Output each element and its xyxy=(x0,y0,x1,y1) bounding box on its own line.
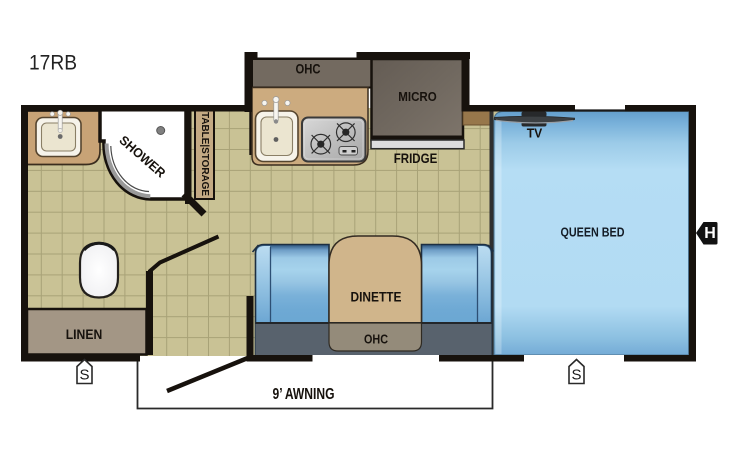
svg-text:OHC: OHC xyxy=(364,332,389,347)
svg-text:DINETTE: DINETTE xyxy=(351,289,402,304)
svg-text:LINEN: LINEN xyxy=(66,326,103,342)
svg-text:S: S xyxy=(571,367,581,384)
svg-text:TABLE|STORAGE: TABLE|STORAGE xyxy=(199,112,211,196)
svg-text:QUEEN BED: QUEEN BED xyxy=(561,225,625,240)
svg-text:H: H xyxy=(704,225,716,242)
svg-text:MICRO: MICRO xyxy=(398,89,437,104)
svg-text:FRIDGE: FRIDGE xyxy=(394,150,438,166)
svg-text:S: S xyxy=(79,367,89,384)
svg-text:9’ AWNING: 9’ AWNING xyxy=(273,386,335,403)
svg-text:17RB: 17RB xyxy=(29,51,77,74)
svg-text:TV: TV xyxy=(527,127,543,141)
svg-text:OHC: OHC xyxy=(296,62,321,77)
